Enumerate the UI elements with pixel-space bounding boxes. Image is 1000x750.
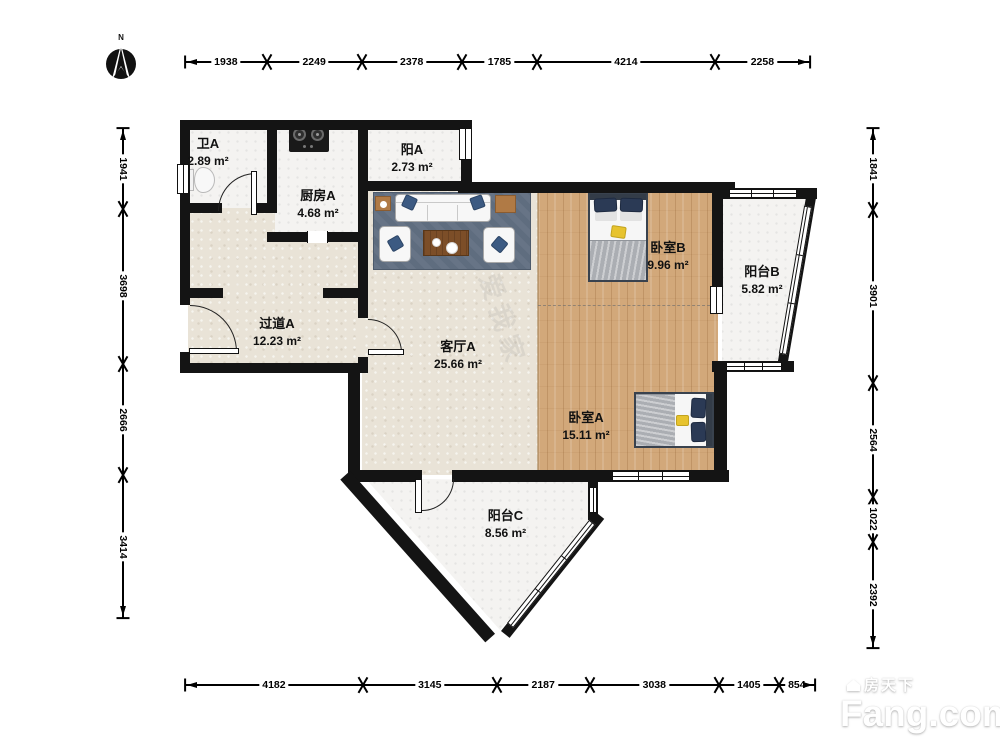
dim-label: 4214: [611, 56, 640, 68]
dim-endbar: [184, 56, 186, 69]
armchair: [483, 227, 515, 263]
dim-label: 2666: [117, 405, 129, 434]
dim-label: 1941: [117, 154, 129, 183]
room-area: 8.56 m²: [463, 526, 548, 542]
room-label-balcony-a: 阳A 2.73 m²: [377, 142, 447, 175]
door-leaf: [368, 349, 404, 355]
dim-label: 3145: [415, 679, 444, 691]
plate: [446, 242, 458, 254]
room-area: 2.73 m²: [377, 160, 447, 176]
dim-endbar: [117, 127, 130, 129]
dim-label: 1022: [867, 505, 879, 534]
pillow: [690, 398, 706, 419]
site-name-en: Fang.com: [840, 695, 1000, 734]
dim-label: 2392: [867, 580, 879, 609]
bedroom-divider-dashed-line: [538, 305, 715, 306]
wall: [348, 363, 360, 473]
dim-arrow: [870, 636, 876, 646]
wall: [180, 203, 222, 213]
room-label-living-room: 客厅A 25.66 m²: [418, 339, 498, 372]
toilet: [186, 166, 216, 194]
room-name: 客厅A: [418, 339, 498, 356]
dim-left: 1941369826663414: [116, 128, 130, 618]
wall: [458, 182, 735, 193]
room-label-bedroom-b: 卧室B 9.96 m²: [628, 240, 708, 273]
room-label-balcony-c: 阳台C 8.56 m²: [463, 508, 548, 541]
coffee-table: [423, 230, 469, 256]
floorplan-image: 我爱我家: [0, 0, 1000, 750]
dim-arrow: [120, 130, 126, 140]
window: [726, 362, 782, 371]
door-leaf: [251, 171, 257, 215]
dim-label: 1405: [734, 679, 763, 691]
room-area: 25.66 m²: [418, 357, 498, 373]
decor: [380, 201, 387, 208]
room-area: 2.89 m²: [173, 154, 243, 170]
fang-logo: 房天下 Fang.com: [840, 674, 1000, 734]
dim-endbar: [117, 617, 130, 619]
dim-label: 2249: [299, 56, 328, 68]
bed-bedroom-a: [634, 392, 714, 448]
room-name: 阳台C: [463, 508, 548, 525]
room-name: 过道A: [237, 316, 317, 333]
headboard: [706, 394, 712, 446]
dim-bottom: 41823145218730381405854: [185, 678, 815, 692]
dim-endbar: [814, 679, 816, 692]
toilet-bowl: [194, 167, 215, 193]
kitchen-opening: [307, 231, 328, 243]
accent-pillow: [610, 225, 627, 239]
north-label: N: [103, 34, 139, 42]
pillow: [594, 197, 618, 212]
wall: [714, 361, 727, 482]
dim-label: 2187: [528, 679, 557, 691]
wall: [180, 288, 223, 298]
north-compass: N: [103, 34, 139, 87]
dim-endbar: [867, 127, 880, 129]
dim-arrow: [798, 59, 808, 65]
dim-arrow: [120, 606, 126, 616]
fang-logo-chinese: 房天下: [846, 674, 1000, 695]
room-name: 厨房A: [283, 188, 353, 205]
wall: [267, 232, 307, 242]
dim-arrow: [187, 59, 197, 65]
house-icon: [846, 678, 861, 692]
window: [589, 487, 597, 513]
window: [612, 471, 690, 481]
plate: [432, 238, 441, 247]
dim-label: 3698: [117, 272, 129, 301]
room-label-balcony-b: 阳台B 5.82 m²: [722, 264, 802, 297]
dim-endbar: [809, 56, 811, 69]
dim-arrow: [187, 682, 197, 688]
dim-endbar: [867, 647, 880, 649]
dim-label: 2258: [748, 56, 777, 68]
armchair: [379, 226, 411, 262]
room-area: 4.68 m²: [283, 206, 353, 222]
dim-label: 4182: [259, 679, 288, 691]
chair-pillow: [387, 235, 405, 253]
dim-label: 2564: [867, 425, 879, 454]
stove-knob: [303, 145, 306, 148]
dim-label: 1841: [867, 154, 879, 183]
blanket: [636, 394, 675, 446]
room-area: 12.23 m²: [237, 334, 317, 350]
site-name-cn: 房天下: [864, 674, 915, 695]
room-label-hallway: 过道A 12.23 m²: [237, 316, 317, 349]
room-area: 5.82 m²: [722, 282, 802, 298]
window: [729, 189, 797, 198]
dim-arrow: [870, 130, 876, 140]
wall: [180, 120, 472, 130]
dim-top: 193822492378178542142258: [185, 55, 810, 69]
compass-icon: [104, 42, 138, 82]
dim-label: 2378: [397, 56, 426, 68]
wall: [360, 181, 472, 191]
dim-label: 1938: [211, 56, 240, 68]
chair-pillow: [490, 235, 508, 253]
wall: [180, 363, 368, 373]
dim-endbar: [184, 679, 186, 692]
pillow: [620, 198, 643, 213]
room-label-bathroom: 卫A 2.89 m²: [173, 136, 243, 169]
dim-label: 3414: [117, 532, 129, 561]
room-name: 卧室B: [628, 240, 708, 257]
living-room-furniture: [373, 192, 531, 272]
door-leaf: [415, 479, 422, 513]
wall: [452, 470, 585, 482]
side-table: [495, 195, 516, 213]
room-label-kitchen: 厨房A 4.68 m²: [283, 188, 353, 221]
accent-pillow: [676, 415, 689, 426]
window: [459, 128, 472, 160]
room-name: 阳台B: [722, 264, 802, 281]
room-label-bedroom-a: 卧室A 15.11 m²: [546, 410, 626, 443]
dim-arrow: [803, 682, 813, 688]
door-leaf: [189, 348, 239, 354]
wall: [267, 130, 277, 213]
pillow: [691, 422, 707, 443]
wall: [323, 288, 368, 298]
dim-label: 3038: [640, 679, 669, 691]
wall: [256, 203, 267, 213]
room-area: 15.11 m²: [546, 428, 626, 444]
dim-label: 1785: [485, 56, 514, 68]
room-name: 卫A: [173, 136, 243, 153]
stove-knob: [310, 145, 313, 148]
dim-label: 3901: [867, 282, 879, 311]
room-name: 卧室A: [546, 410, 626, 427]
room-area: 9.96 m²: [628, 258, 708, 274]
room-name: 阳A: [377, 142, 447, 159]
floor-boundary: [537, 193, 539, 470]
side-table: [375, 196, 391, 211]
dim-right: 18413901256410222392: [866, 128, 880, 648]
